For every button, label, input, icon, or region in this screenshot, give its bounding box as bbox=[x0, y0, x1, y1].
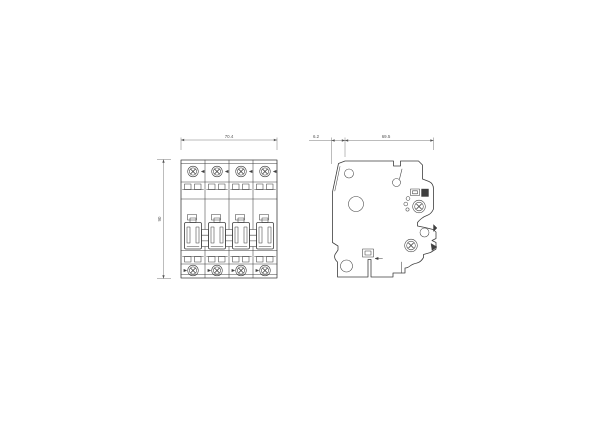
toggle-connector bbox=[226, 230, 233, 247]
breaker-pole-2 bbox=[207, 166, 229, 276]
busbar-slot-detail bbox=[363, 249, 383, 260]
toggle-connector bbox=[202, 230, 209, 247]
side-depth-label: 69.5 bbox=[382, 134, 391, 139]
terminal-block-top bbox=[393, 169, 429, 213]
breaker-pole-3 bbox=[231, 166, 253, 276]
housing-hole bbox=[420, 228, 429, 237]
toggle-connector bbox=[250, 230, 257, 247]
side-offset-label: 6.2 bbox=[313, 134, 320, 139]
front-view bbox=[181, 160, 277, 278]
front-width-label: 70.4 bbox=[225, 134, 234, 139]
mcb-dimension-drawing: 70.4 90 6.2 69.5 bbox=[0, 0, 600, 424]
housing-hole bbox=[345, 169, 354, 178]
side-body-outline bbox=[333, 161, 437, 277]
side-view bbox=[333, 161, 438, 277]
drawing-canvas: 70.4 90 6.2 69.5 bbox=[0, 0, 600, 424]
breaker-pole-1 bbox=[183, 166, 205, 276]
side-depth-dimension: 6.2 69.5 bbox=[309, 134, 434, 164]
front-height-label: 90 bbox=[157, 216, 162, 221]
housing-hole bbox=[349, 197, 364, 212]
terminal-block-bottom bbox=[405, 239, 418, 252]
breaker-pole-4 bbox=[255, 166, 277, 276]
front-height-dimension: 90 bbox=[157, 160, 171, 279]
housing-hole bbox=[341, 260, 353, 272]
front-width-dimension: 70.4 bbox=[181, 134, 277, 150]
